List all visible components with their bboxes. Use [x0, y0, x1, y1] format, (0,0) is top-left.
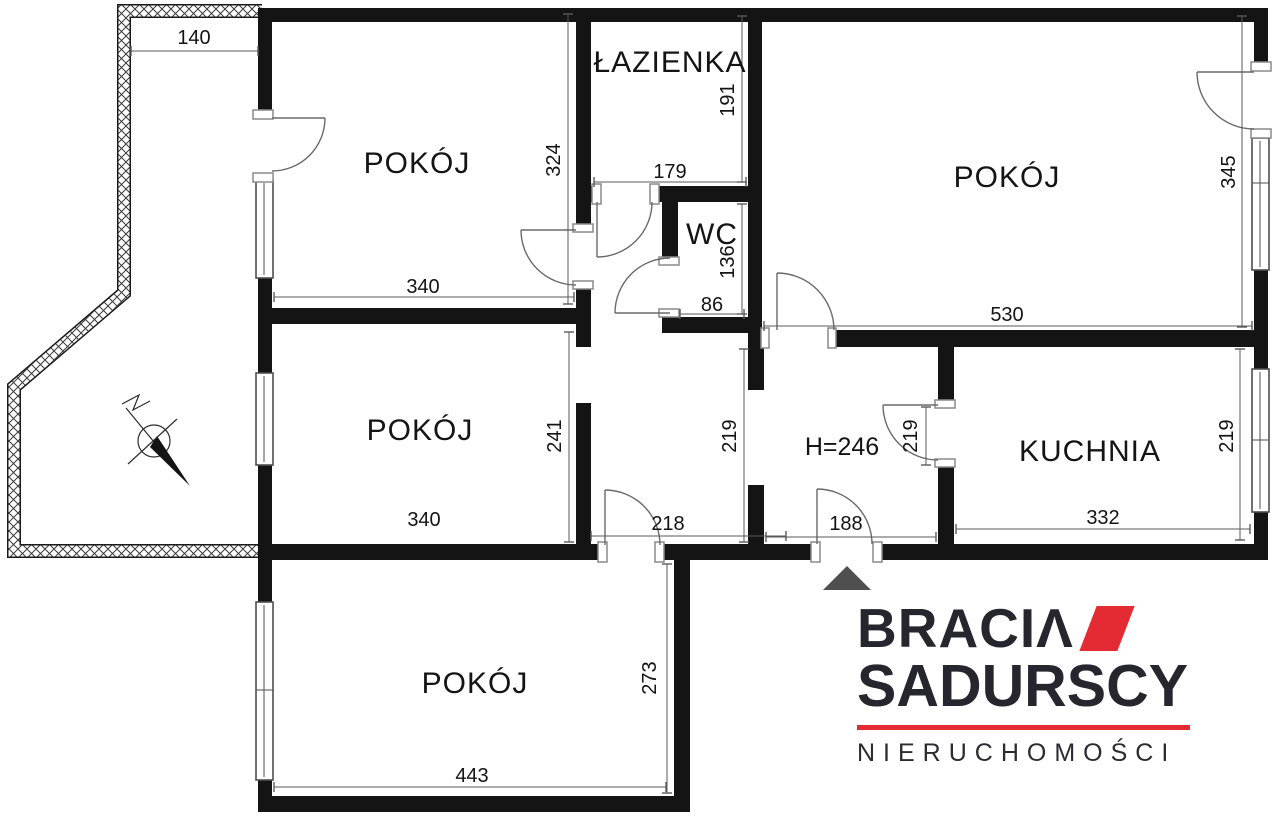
compass-north-arrow-icon [122, 395, 190, 486]
dim-balcony-width: 140 [177, 27, 210, 49]
dim-kitchen-width: 332 [1086, 507, 1119, 529]
dim-bath-width: 179 [653, 161, 686, 183]
label-bathroom: ŁAZIENKA [593, 46, 746, 79]
dim-room-ml-height: 241 [544, 419, 566, 452]
balcony-door-right [1197, 72, 1254, 129]
dim-room-tr-width: 530 [990, 304, 1023, 326]
dim-entry-door: 188 [829, 513, 862, 535]
dim-bottom-door: 218 [651, 513, 684, 535]
balcony-door-left [272, 118, 325, 171]
agency-logo: BRACIΛ SADURSCY NIERUCHOMOŚCI [857, 604, 1190, 768]
dim-room-tl-height: 324 [543, 143, 565, 176]
dim-wc-width: 86 [701, 294, 723, 316]
door-bathroom [597, 202, 652, 257]
label-room-top-left: POKÓJ [364, 147, 471, 180]
logo-row1: BRACIΛ [857, 604, 1190, 652]
dim-kitchen-door: 219 [900, 419, 922, 452]
dim-kitchen-window: 219 [1216, 419, 1238, 452]
dim-room-tr-height: 345 [1218, 155, 1240, 188]
floor-plan: 140 324 191 179 136 86 340 530 345 241 2… [0, 0, 1280, 835]
dim-hall-width: 219 [719, 419, 741, 452]
logo-subtitle: NIERUCHOMOŚCI [857, 739, 1190, 768]
label-hall-height: H=246 [805, 433, 879, 461]
dim-room-tl-width: 340 [406, 276, 439, 298]
label-wc: WC [686, 218, 738, 251]
dim-room-b-height: 273 [639, 661, 661, 694]
logo-red-parallelogram-icon [1079, 606, 1134, 651]
logo-red-rule [857, 725, 1190, 730]
door-wc [615, 258, 670, 313]
label-room-middle-left: POKÓJ [367, 414, 474, 447]
label-room-top-right: POKÓJ [954, 161, 1061, 194]
entrance-arrow-icon [823, 566, 871, 590]
dim-bath-height: 191 [717, 83, 739, 116]
logo-brand-line1: BRACIΛ [857, 604, 1074, 652]
label-kitchen: KUCHNIA [1019, 435, 1161, 468]
label-room-bottom: POKÓJ [422, 667, 529, 700]
dim-room-b-width: 443 [455, 765, 488, 787]
balcony-parapet-hatch [14, 11, 262, 551]
door-room-top-right [777, 273, 834, 330]
logo-brand-line2: SADURSCY [857, 657, 1190, 716]
dim-room-ml-width: 340 [407, 509, 440, 531]
